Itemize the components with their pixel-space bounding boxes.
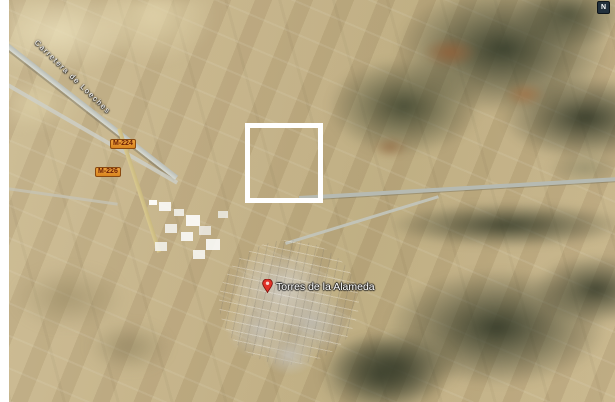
terrain-bright-fields [9, 0, 249, 160]
terrain-woods-bottomright [315, 242, 615, 402]
north-compass-button[interactable]: N [597, 1, 610, 14]
industrial-buildings [149, 200, 157, 205]
road-highway-parallel [9, 66, 178, 184]
highlight-rectangle [245, 123, 323, 203]
road-middle-horizontal [299, 176, 615, 200]
town-street-grid [219, 240, 359, 365]
terrain-woods-topright [305, 0, 615, 210]
place-name-label: Torres de la Alameda [276, 281, 375, 293]
town-urban-area [214, 235, 364, 370]
town-southern-area [254, 330, 324, 385]
terrain-woods-bottommid [309, 312, 479, 402]
place-pin-icon[interactable] [262, 279, 273, 293]
satellite-map-canvas[interactable]: M-224 M-226 Carretera de Loeches Torres … [9, 0, 615, 402]
terrain-scrub-left [9, 242, 189, 382]
road-left-edge [9, 186, 118, 206]
map-screenshot: M-224 M-226 Carretera de Loeches Torres … [0, 0, 615, 402]
road-badge-m224: M-224 [110, 139, 136, 149]
terrain-brown-clearings [315, 0, 615, 210]
street-name-label: Carretera de Loeches [33, 38, 113, 116]
road-badge-m226: M-226 [95, 167, 121, 177]
terrain-ridge-midright [365, 190, 615, 260]
left-margin-strip [0, 0, 9, 402]
